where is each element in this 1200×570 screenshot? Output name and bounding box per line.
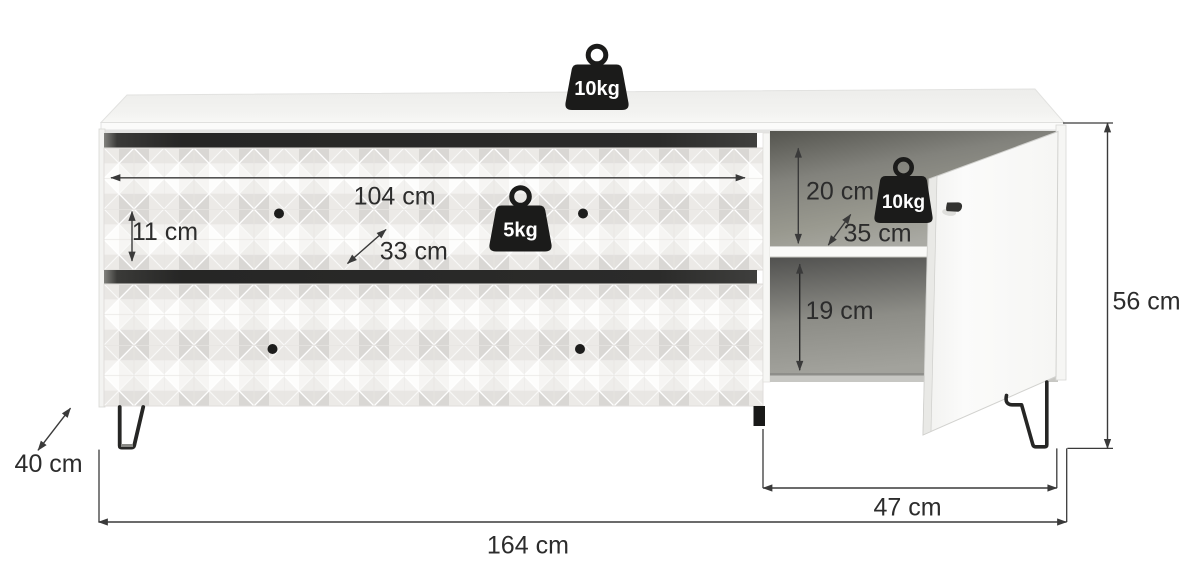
- svg-text:11 cm: 11 cm: [132, 218, 198, 246]
- svg-text:10kg: 10kg: [882, 192, 925, 213]
- svg-text:10kg: 10kg: [574, 78, 620, 100]
- svg-text:33 cm: 33 cm: [380, 238, 448, 266]
- svg-text:19 cm: 19 cm: [805, 297, 873, 325]
- svg-text:104 cm: 104 cm: [354, 183, 436, 211]
- svg-text:5kg: 5kg: [503, 220, 537, 242]
- svg-text:56 cm: 56 cm: [1112, 288, 1180, 316]
- svg-text:40 cm: 40 cm: [15, 450, 83, 478]
- svg-text:164 cm: 164 cm: [487, 532, 569, 560]
- svg-text:20 cm: 20 cm: [806, 178, 874, 206]
- svg-text:35 cm: 35 cm: [843, 220, 911, 248]
- svg-text:47 cm: 47 cm: [873, 494, 941, 522]
